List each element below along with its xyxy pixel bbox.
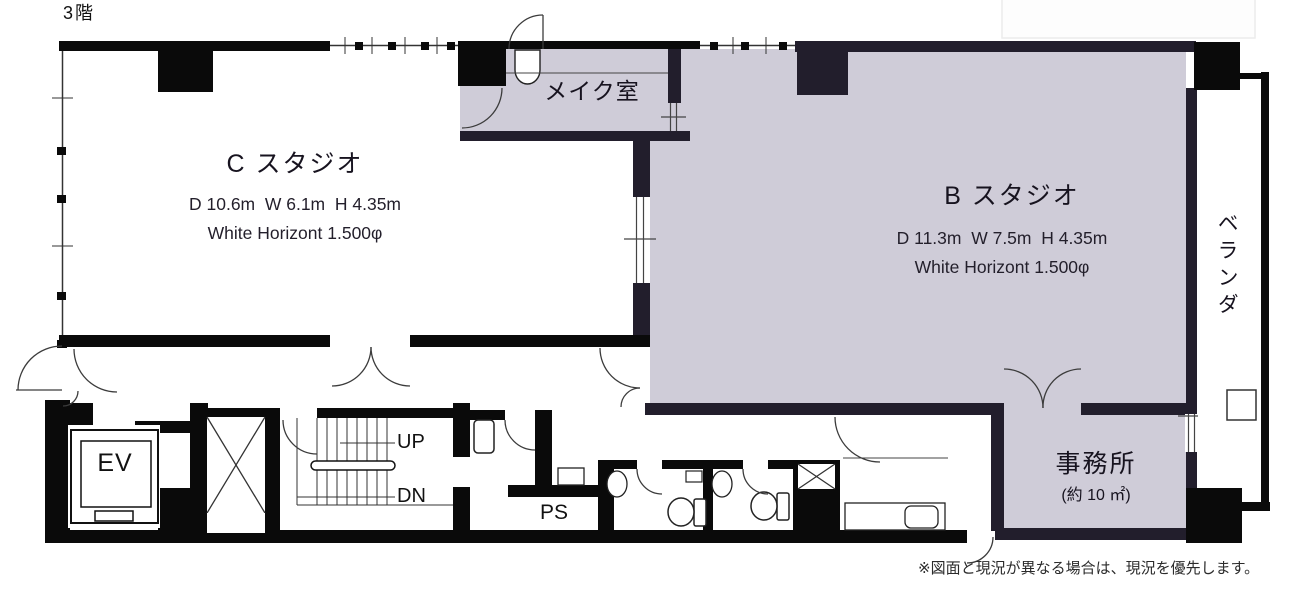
- makeup-room-title: メイク室: [544, 79, 640, 104]
- toilet-icon: [668, 498, 706, 526]
- c-studio-bottom-wall: [59, 335, 650, 347]
- corner-column-ne: [1194, 42, 1240, 90]
- makeup-column: [458, 41, 506, 86]
- office-bottom-wall: [995, 528, 1197, 540]
- floor-label: 3階: [63, 4, 95, 24]
- door-stairwell: [283, 420, 317, 454]
- stairs-handrail: [311, 461, 395, 470]
- sink-icon: [712, 471, 732, 497]
- disclaimer-note: ※図面と現況が異なる場合は、現況を優先します。: [918, 561, 1259, 578]
- office-area: (約 10 ㎡): [1061, 487, 1130, 505]
- stairs-down-label: DN: [397, 485, 426, 507]
- urinal-icon: [474, 420, 494, 453]
- corner-column-se: [1186, 488, 1242, 543]
- veranda-equipment-box: [1227, 390, 1256, 420]
- b-studio-column: [797, 42, 848, 95]
- b-studio-dimensions: D 11.3m W 7.5m H 4.35m: [897, 229, 1108, 248]
- shaft-x-icon: [193, 408, 280, 543]
- elevator-label: EV: [97, 450, 132, 478]
- cropped-ui-fragment: [1002, 0, 1255, 38]
- stairs-icon: [297, 418, 453, 505]
- c-studio-column: [158, 50, 213, 92]
- c-studio-spec: White Horizont 1.500φ: [208, 224, 383, 243]
- door-ev-lobby: [74, 349, 117, 392]
- veranda-title: ベランダ: [1215, 212, 1238, 320]
- b-studio-title: B スタジオ: [944, 183, 1080, 211]
- door-stall-2: [743, 469, 768, 494]
- ps-equipment-box: [558, 468, 584, 485]
- floor-plan-drawing: [0, 0, 1299, 596]
- toilet-icon: [751, 492, 789, 520]
- tp-holder-icon: [686, 471, 702, 482]
- door-toilet-room: [505, 420, 535, 450]
- office-left-wall: [991, 403, 1004, 531]
- basin-icon: [515, 50, 540, 84]
- c-studio-title: C スタジオ: [226, 151, 363, 179]
- b-studio-spec: White Horizont 1.500φ: [915, 258, 1090, 277]
- door-stall-1: [637, 469, 662, 494]
- counter-sink-icon: [843, 458, 948, 530]
- duct-x-icon: [798, 464, 835, 489]
- door-b-studio-left: [600, 348, 640, 407]
- sink-icon: [607, 471, 627, 497]
- stairs-up-label: UP: [397, 431, 425, 453]
- c-studio-dimensions: D 10.6m W 6.1m H 4.35m: [189, 195, 401, 214]
- office-title: 事務所: [1055, 451, 1136, 479]
- floor-plan: 3階 C スタジオ D 10.6m W 6.1m H 4.35m White H…: [0, 0, 1299, 596]
- pipe-space-label: PS: [540, 501, 568, 524]
- door-c-studio-double: [332, 347, 410, 386]
- door-exterior-left: [16, 346, 62, 390]
- door-corridor: [835, 417, 880, 462]
